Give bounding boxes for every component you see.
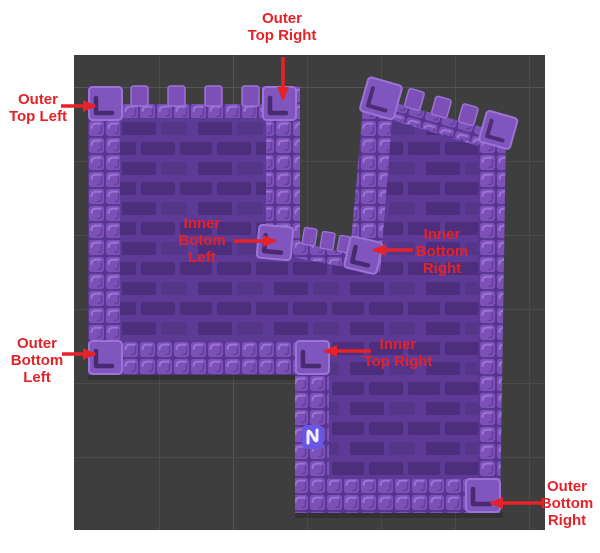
label-line: Outer (536, 478, 598, 495)
outer-bottom-right-corner-tile (466, 479, 500, 512)
label-inner-top-right: Inner Top Right (352, 336, 444, 370)
label-line: Bottom (536, 495, 598, 512)
label-line: Bottom (398, 243, 486, 260)
label-outer-bottom-right: Outer Bottom Right (536, 478, 598, 529)
label-outer-top-left: Outer Top Left (2, 91, 74, 125)
label-line: Outer (1, 335, 73, 352)
label-inner-bottom-right: Inner Bottom Right (398, 226, 486, 277)
label-outer-bottom-left: Outer Bottom Left (1, 335, 73, 386)
outer-top-left-corner-tile (89, 87, 122, 120)
label-line: Inner (398, 226, 486, 243)
label-line: Top Right (233, 27, 331, 44)
inner-bottom-right-corner-tile (344, 236, 383, 275)
label-line: Inner (352, 336, 444, 353)
label-line: Inner (166, 215, 238, 232)
label-inner-botom-left: Inner Botom Left (166, 215, 238, 266)
screenshot: Outer Top Left Outer Top Right Inner Bot… (0, 0, 600, 553)
outer-top-right-corner-tile (263, 87, 296, 120)
label-line: Left (1, 369, 73, 386)
label-line: Outer (233, 10, 331, 27)
label-line: Outer (2, 91, 74, 108)
label-line: Bottom (1, 352, 73, 369)
outer-bottom-left-corner-tile (89, 341, 122, 374)
label-line: Left (166, 249, 238, 266)
label-line: Right (536, 512, 598, 529)
label-line: Right (398, 260, 486, 277)
label-line: Botom (166, 232, 238, 249)
label-line: Top Right (352, 353, 444, 370)
inner-top-right-corner-tile (296, 341, 329, 374)
label-outer-top-right: Outer Top Right (233, 10, 331, 44)
label-line: Top Left (2, 108, 74, 125)
scene-canvas (0, 0, 600, 553)
wave-icon[interactable] (302, 425, 323, 449)
